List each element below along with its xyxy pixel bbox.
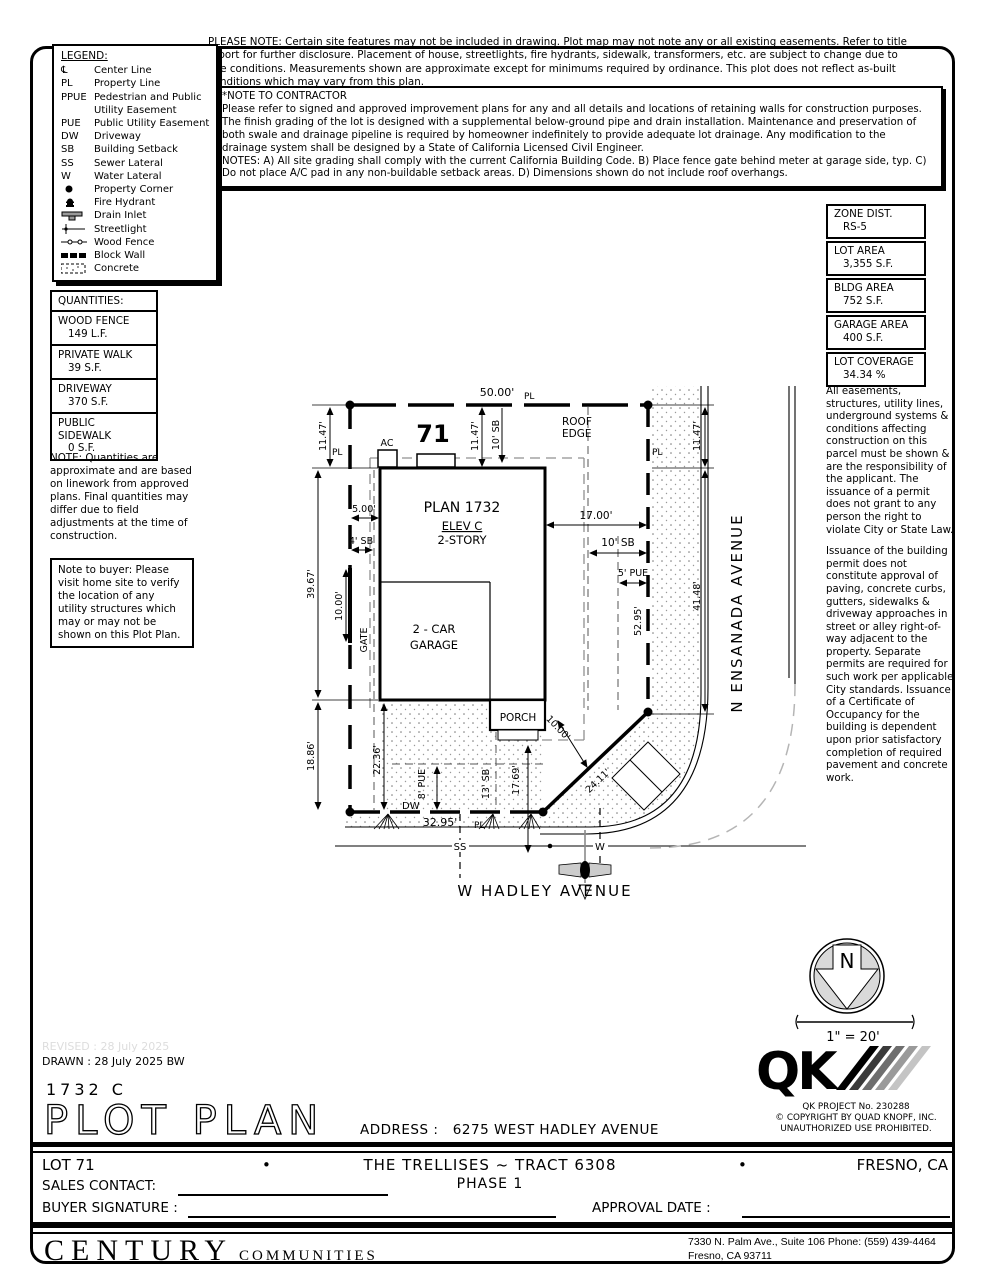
city-notes: All easements, structures, utility lines… bbox=[826, 386, 954, 794]
story-label: 2-STORY bbox=[437, 533, 487, 547]
garage-label-2: GARAGE bbox=[410, 638, 458, 652]
qk-logo-text: QK bbox=[756, 1042, 839, 1098]
bullet: • bbox=[738, 1156, 747, 1174]
contractor-note-box: *NOTE TO CONTRACTOR Please refer to sign… bbox=[213, 86, 943, 188]
bay-projection bbox=[417, 454, 455, 467]
streetlight-icon bbox=[61, 223, 87, 235]
pl-mark-bottom: PL bbox=[474, 821, 484, 831]
porch-step bbox=[498, 730, 538, 740]
divider bbox=[33, 1151, 955, 1153]
roof-edge-label-2: EDGE bbox=[562, 428, 592, 440]
builder-address-line1: 7330 N. Palm Ave., Suite 106 Phone: (559… bbox=[688, 1236, 954, 1250]
zone-dist-box: ZONE DIST.RS-5 bbox=[826, 204, 926, 239]
buyer-note-box: Note to buyer: Please visit home site to… bbox=[50, 558, 194, 648]
dim-17-69: 17.69' bbox=[511, 765, 522, 795]
contractor-note-title: *NOTE TO CONTRACTOR bbox=[222, 91, 934, 104]
north-arrow: N 1" = 20' bbox=[790, 935, 920, 1047]
house-outline bbox=[378, 450, 545, 740]
legend-title: LEGEND: bbox=[61, 50, 211, 63]
approval-date-label: APPROVAL DATE : bbox=[592, 1200, 711, 1216]
dim-11-47-left: 11.47' bbox=[318, 421, 329, 451]
contractor-note-p3: NOTES: A) All site grading shall comply … bbox=[222, 156, 934, 182]
city-label: FRESNO, CA bbox=[830, 1156, 948, 1174]
qk-logo: QK bbox=[756, 1040, 956, 1098]
dim-11-47-top: 11.47' bbox=[470, 421, 481, 451]
contractor-note-p1: Please refer to signed and approved impr… bbox=[222, 104, 934, 117]
builder-logo: CENTURYCOMMUNITIES bbox=[44, 1234, 378, 1268]
wood-fence-icon bbox=[61, 237, 87, 247]
elev-label: ELEV C bbox=[442, 519, 483, 533]
gate-label: GATE bbox=[359, 628, 370, 653]
street-name-right: N ENSANADA AVENUE bbox=[728, 513, 746, 712]
address-value: 6275 WEST HADLEY AVENUE bbox=[453, 1122, 659, 1138]
legend-item: Streetlight bbox=[61, 223, 211, 236]
buyer-signature-label: BUYER SIGNATURE : bbox=[42, 1200, 178, 1216]
approval-date-field[interactable] bbox=[742, 1215, 950, 1218]
property-corner-icon bbox=[61, 184, 85, 194]
ac-label: AC bbox=[381, 438, 394, 449]
qk-project-no: QK PROJECT No. 230288 bbox=[756, 1102, 956, 1113]
lot-coverage-box: LOT COVERAGE34.34 % bbox=[826, 352, 926, 387]
dim-10-00-diag: 10.00' bbox=[543, 714, 572, 743]
sb-10-top-label: 10' SB bbox=[491, 420, 502, 450]
drain-inlet-icon bbox=[61, 209, 87, 221]
dim-52-95: 52.95' bbox=[633, 606, 644, 636]
pl-mark-top: PL bbox=[524, 392, 534, 402]
legend-item: PUEPublic Utility Easement bbox=[61, 117, 211, 130]
builder-name: CENTURY bbox=[44, 1234, 233, 1267]
plot-plan-sheet: PLEASE NOTE: Certain site features may n… bbox=[0, 0, 988, 1278]
divider bbox=[33, 1142, 955, 1147]
dim-39-67: 39.67' bbox=[306, 569, 317, 599]
sales-contact-label: SALES CONTACT: bbox=[42, 1178, 156, 1194]
concrete-icon bbox=[61, 263, 87, 274]
table-row: PRIVATE WALK39 S.F. bbox=[52, 346, 156, 380]
drawn-date: DRAWN : 28 July 2025 BW bbox=[42, 1055, 185, 1068]
qk-unauthorized: UNAUTHORIZED USE PROHIBITED. bbox=[756, 1124, 956, 1135]
sb-4-label: 4' SB bbox=[349, 536, 373, 547]
builder-address-line2: Fresno, CA 93711 bbox=[688, 1250, 954, 1264]
pl-mark-left: PL bbox=[332, 448, 342, 458]
easement-note: All easements, structures, utility lines… bbox=[826, 386, 954, 537]
legend-item: ℄Center Line bbox=[61, 64, 211, 77]
dim-10-00-gate: 10.00' bbox=[334, 591, 345, 621]
dim-32-95: 32.95' bbox=[423, 816, 458, 829]
legend-item: DWDriveway bbox=[61, 130, 211, 143]
sb-10-right-label: 10' SB bbox=[601, 537, 634, 549]
buyer-signature-field[interactable] bbox=[188, 1215, 556, 1218]
lot-label: LOT 71 bbox=[42, 1156, 95, 1174]
dim-5-00: 5.00' bbox=[352, 504, 376, 515]
zone-table: ZONE DIST.RS-5 LOT AREA3,355 S.F. BLDG A… bbox=[826, 204, 926, 389]
dim-18-86: 18.86' bbox=[306, 741, 317, 771]
lot-area-box: LOT AREA3,355 S.F. bbox=[826, 241, 926, 276]
legend-item: Fire Hydrant bbox=[61, 196, 211, 209]
qk-copyright: © COPYRIGHT BY QUAD KNOPF, INC. bbox=[756, 1113, 956, 1124]
garage-area-box: GARAGE AREA400 S.F. bbox=[826, 315, 926, 350]
legend-box: LEGEND: ℄Center Line PLProperty Line PPU… bbox=[52, 44, 218, 282]
quantities-note: NOTE: Quantities are approximate and are… bbox=[50, 452, 192, 543]
builder-address: 7330 N. Palm Ave., Suite 106 Phone: (559… bbox=[688, 1236, 954, 1263]
please-note: PLEASE NOTE: Certain site features may n… bbox=[208, 36, 914, 90]
pue-5-label: 5' PUE bbox=[618, 568, 648, 579]
fire-hydrant-icon bbox=[61, 197, 85, 208]
sheet-title: PLOT PLAN bbox=[42, 1094, 352, 1146]
divider bbox=[33, 1222, 955, 1228]
legend-item: Drain Inlet bbox=[61, 209, 211, 222]
garage-label-1: 2 - CAR bbox=[413, 622, 456, 636]
revised-date: REVISED : 28 July 2025 bbox=[42, 1040, 169, 1053]
north-letter: N bbox=[840, 949, 855, 973]
table-row: DRIVEWAY370 S.F. bbox=[52, 380, 156, 414]
dw-label: DW bbox=[402, 801, 420, 812]
legend-item: Wood Fence bbox=[61, 236, 211, 249]
permit-note: Issuance of the building permit does not… bbox=[826, 546, 954, 785]
ac-pad bbox=[378, 450, 397, 467]
tract-label: THE TRELLISES ~ TRACT 6308 bbox=[310, 1156, 670, 1174]
legend-item: Block Wall bbox=[61, 249, 211, 262]
porch-label: PORCH bbox=[500, 712, 537, 724]
qk-logo-block: QK QK PROJECT No. 230288 © COPYRIGHT BY … bbox=[756, 1040, 956, 1135]
dim-11-47-right: 11.47' bbox=[692, 421, 703, 451]
block-wall-icon bbox=[61, 251, 87, 260]
site-plan-drawing: 50.00' PL PL PL PL 71 AC 11.47' 39.67' 1… bbox=[300, 378, 820, 943]
quantities-table: QUANTITIES: WOOD FENCE149 L.F. PRIVATE W… bbox=[50, 290, 158, 461]
sheet-title-text: PLOT PLAN bbox=[44, 1098, 325, 1144]
lot-number: 71 bbox=[416, 420, 449, 448]
plan-name: PLAN 1732 bbox=[424, 500, 501, 516]
address-line: ADDRESS : 6275 WEST HADLEY AVENUE bbox=[360, 1122, 659, 1138]
centerline-symbol: ℄ bbox=[61, 64, 94, 77]
dim-41-48: 41.48' bbox=[692, 581, 703, 611]
legend-item: WWater Lateral bbox=[61, 170, 211, 183]
legend-item: SBBuilding Setback bbox=[61, 143, 211, 156]
legend-item: Property Corner bbox=[61, 183, 211, 196]
legend-item: SSSewer Lateral bbox=[61, 157, 211, 170]
pl-mark-right: PL bbox=[652, 448, 662, 458]
table-row: WOOD FENCE149 L.F. bbox=[52, 312, 156, 346]
sb-13-label: 13' SB bbox=[481, 769, 492, 799]
quantities-title: QUANTITIES: bbox=[52, 292, 156, 312]
legend-item: Concrete bbox=[61, 262, 211, 275]
builder-sub: COMMUNITIES bbox=[239, 1248, 378, 1264]
sales-contact-field[interactable] bbox=[178, 1193, 388, 1196]
dim-50-00: 50.00' bbox=[480, 386, 515, 399]
dim-17-00: 17.00' bbox=[580, 510, 613, 522]
phase-label: PHASE 1 bbox=[310, 1176, 670, 1192]
contractor-note-p2: The finish grading of the lot is designe… bbox=[222, 117, 934, 156]
ss-lateral-label: SS bbox=[454, 842, 467, 853]
bullet: • bbox=[262, 1156, 271, 1174]
address-label: ADDRESS : bbox=[360, 1122, 438, 1138]
street-name-bottom: W HADLEY AVENUE bbox=[457, 882, 632, 900]
legend-item: PLProperty Line bbox=[61, 77, 211, 90]
roof-edge-label-1: ROOF bbox=[562, 416, 592, 428]
legend-item: PPUEPedestrian and Public Utility Easeme… bbox=[61, 91, 211, 117]
w-lateral-label: W bbox=[595, 842, 605, 853]
bldg-area-box: BLDG AREA752 S.F. bbox=[826, 278, 926, 313]
dim-22-36: 22.36' bbox=[372, 745, 383, 775]
pue-8-label: 8' PUE bbox=[417, 769, 428, 799]
